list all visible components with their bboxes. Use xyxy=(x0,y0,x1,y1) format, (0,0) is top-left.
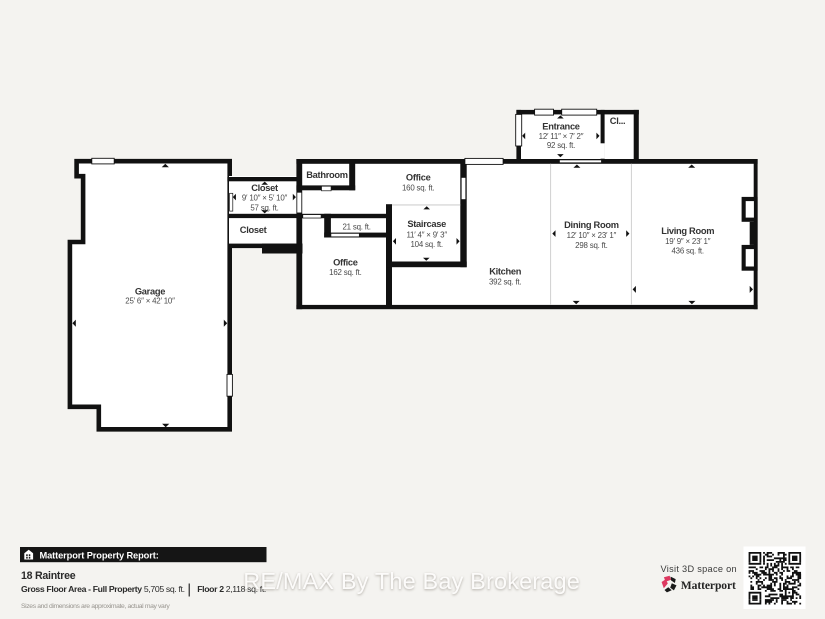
svg-text:162 sq. ft.: 162 sq. ft. xyxy=(329,268,361,277)
svg-text:Sizes and dimensions are appro: Sizes and dimensions are approximate, ac… xyxy=(21,603,170,610)
svg-text:Matterport Property Report:: Matterport Property Report: xyxy=(40,550,159,560)
svg-text:Entrance: Entrance xyxy=(542,121,580,131)
svg-text:18 Raintree: 18 Raintree xyxy=(21,570,76,582)
svg-text:Staircase: Staircase xyxy=(407,219,446,229)
svg-text:19′ 9″ × 23′ 1″: 19′ 9″ × 23′ 1″ xyxy=(665,237,711,246)
svg-text:25′ 6″ × 42′ 10″: 25′ 6″ × 42′ 10″ xyxy=(125,296,175,305)
svg-text:Office: Office xyxy=(333,257,358,267)
svg-text:Office: Office xyxy=(406,172,431,182)
svg-text:Living Room: Living Room xyxy=(661,226,714,236)
svg-text:Garage: Garage xyxy=(135,287,165,297)
svg-text:11′ 4″ × 9′ 3″: 11′ 4″ × 9′ 3″ xyxy=(406,230,447,239)
svg-text:298 sq. ft.: 298 sq. ft. xyxy=(575,241,607,250)
svg-text:Matterport: Matterport xyxy=(681,579,736,592)
svg-text:21 sq. ft.: 21 sq. ft. xyxy=(342,222,370,231)
svg-text:12′ 11″ × 7′ 2″: 12′ 11″ × 7′ 2″ xyxy=(539,132,584,141)
svg-text:104 sq. ft.: 104 sq. ft. xyxy=(410,240,442,249)
svg-text:160 sq. ft.: 160 sq. ft. xyxy=(402,183,434,192)
svg-text:RE/MAX By The Bay Brokerage: RE/MAX By The Bay Brokerage xyxy=(243,568,580,594)
svg-text:Gross Floor Area - Full Proper: Gross Floor Area - Full Property 5,705 s… xyxy=(21,584,185,594)
svg-text:392 sq. ft.: 392 sq. ft. xyxy=(489,277,521,286)
svg-text:12′ 10″ × 23′ 1″: 12′ 10″ × 23′ 1″ xyxy=(567,231,617,240)
svg-text:436 sq. ft.: 436 sq. ft. xyxy=(671,247,703,256)
svg-text:Visit 3D space on: Visit 3D space on xyxy=(661,564,737,574)
svg-text:Closet: Closet xyxy=(240,225,267,235)
svg-text:9′ 10″ × 5′ 10″: 9′ 10″ × 5′ 10″ xyxy=(242,194,288,203)
svg-text:92 sq. ft.: 92 sq. ft. xyxy=(547,141,575,150)
svg-text:Kitchen: Kitchen xyxy=(489,266,522,276)
svg-text:Bathroom: Bathroom xyxy=(306,170,348,180)
svg-text:Dining Room: Dining Room xyxy=(564,220,619,230)
svg-text:Cl...: Cl... xyxy=(610,116,626,126)
